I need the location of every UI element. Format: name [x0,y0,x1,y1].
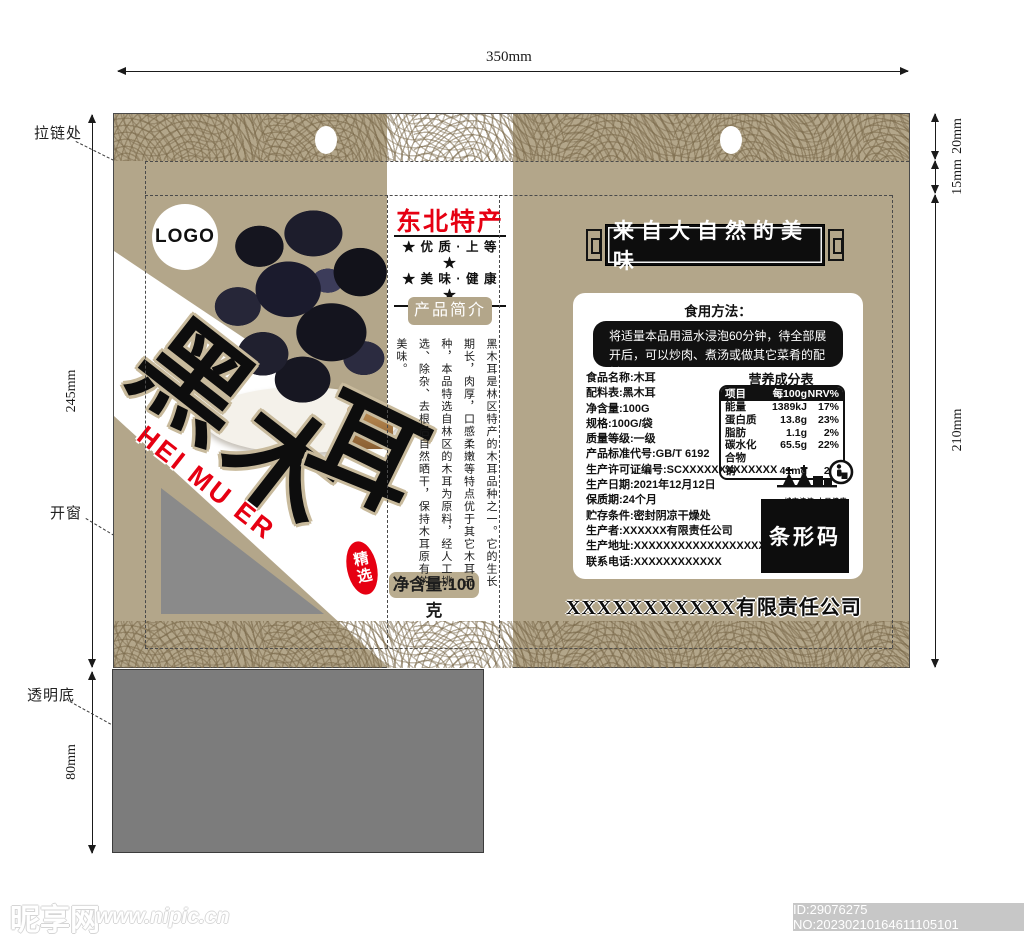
watermark-id-bar: ID:29076275 NO:20230210164611105101 [793,903,1024,931]
dim-width-label: 350mm [486,49,532,66]
nutrition-header-cell: 项目 [725,387,763,401]
fold-line-strip-right [499,195,500,648]
nutrition-header-row: 项目 每100g NRV% [721,387,843,401]
company-name: XXXXXXXXXXX有限责任公司 [554,591,874,620]
wave-pattern-bottom [114,621,909,668]
dim-left-80mm-label: 80mm [64,732,80,792]
intro-title-badge: 产品简介 [408,297,492,325]
wave-pattern-top [114,114,909,161]
package-dieline: LOGO 黑 木 耳 HEI MU ER 精选 净含量:100克 东北特产 ★ … [113,113,910,668]
slogan-line-1: ★ 优 质 · 上 等 ★ [394,239,506,271]
back-plaque: 来自大自然的美味 [586,224,844,266]
nutrition-row: 能量 1389kJ 17% [721,401,843,414]
packaging-design-canvas: 350mm 20mm 15mm 210mm 245mm 80mm 拉链处 开窗 … [0,0,1024,941]
back-info-card: 食用方法： 将适量本品用温水浸泡60分钟，待全部展 开后，可以炒肉、煮汤或做其它… [573,293,863,579]
plaque-text: 来自大自然的美味 [605,224,825,266]
fold-line-15mm-zipper [145,195,892,196]
safe-area-left-line [145,161,146,648]
barcode-placeholder: 条形码 [761,499,849,573]
intro-vertical-text: 黑木耳是林区特产的木耳品种之一。它的生长期长，肉厚，口感柔嫩等特点优于其它木耳品… [396,338,502,588]
nutrition-row: 脂肪 1.1g 2% [721,427,843,440]
info-line: 联系电话:XXXXXXXXXXXX [586,555,777,570]
watermark-site-name: 昵享网 [10,895,100,939]
info-line: 生产地址:XXXXXXXXXXXXXXXXXXX [586,539,777,554]
dim-right-20mm-arrow [935,114,936,159]
dim-right-15mm-label: 15mm [950,147,966,207]
info-line: 生产日期:2021年12月12日 [586,478,777,493]
dim-right-15mm-arrow [935,161,936,193]
origin-title: 东北特产 [387,202,513,238]
usage-instructions: 将适量本品用温水浸泡60分钟，待全部展 开后，可以炒肉、煮汤或做其它菜肴的配料。 [593,321,843,367]
logo-badge: LOGO [152,204,218,270]
safe-area-bottom-line [145,648,892,649]
dim-right-210mm-arrow [935,195,936,667]
nutrition-header-cell: NRV% [807,387,839,401]
usage-title: 食用方法： [573,300,863,320]
transparent-bottom-panel [112,669,484,853]
window-callout-label: 开窗 [50,502,82,523]
premium-seal-text: 精选 [348,549,376,587]
nutrition-row: 蛋白质 13.8g 23% [721,414,843,427]
dim-left-80mm-arrow [92,672,93,853]
fold-line-strip-left [387,195,388,648]
safe-area-right-line [892,195,893,648]
city-clean-icon [775,459,857,491]
hang-hole-right [720,126,742,154]
dim-width-arrow [118,71,908,72]
dim-right-210mm-label: 210mm [950,400,966,460]
watermark-site-url: www.nipic.cn [96,905,229,929]
fret-ornament-right [828,229,844,261]
fret-ornament-left [586,229,602,261]
info-line: 贮存条件:密封阴凉干燥处 [586,509,777,524]
zipper-callout-label: 拉链处 [34,122,82,143]
dim-left-245mm-arrow [92,115,93,667]
dim-left-245mm-label: 245mm [64,361,80,421]
info-line: 生产者:XXXXXX有限责任公司 [586,524,777,539]
nutrition-header-cell: 每100g [763,387,807,401]
info-line: 保质期:24个月 [586,493,777,508]
hang-hole-left [315,126,337,154]
clear-bottom-callout-label: 透明底 [27,684,75,705]
fold-line-20mm [145,161,909,162]
